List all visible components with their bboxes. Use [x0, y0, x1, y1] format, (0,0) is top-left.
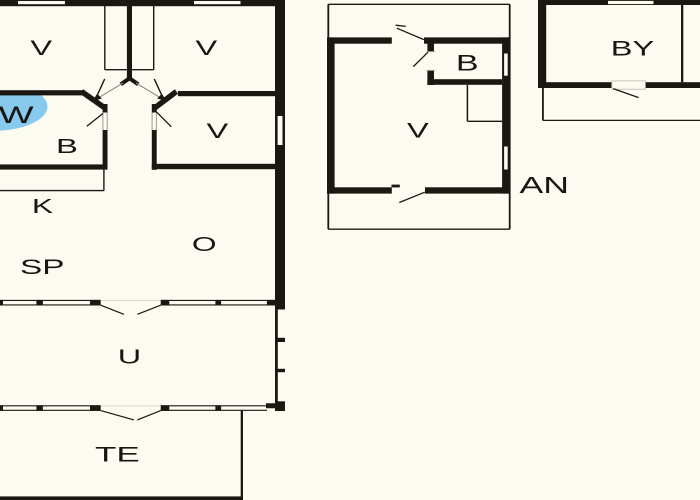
svg-text:AN: AN	[519, 173, 569, 198]
svg-text:SP: SP	[20, 255, 64, 279]
svg-text:V: V	[207, 119, 230, 143]
svg-text:TE: TE	[95, 443, 140, 466]
svg-text:O: O	[192, 233, 217, 256]
svg-text:V: V	[30, 36, 53, 60]
svg-text:U: U	[118, 345, 141, 367]
svg-text:K: K	[32, 195, 53, 218]
svg-text:V: V	[195, 36, 218, 60]
svg-text:V: V	[407, 118, 430, 142]
svg-text:W: W	[0, 101, 34, 128]
svg-text:B: B	[56, 134, 78, 157]
svg-text:B: B	[456, 52, 479, 77]
svg-text:BY: BY	[611, 36, 654, 60]
